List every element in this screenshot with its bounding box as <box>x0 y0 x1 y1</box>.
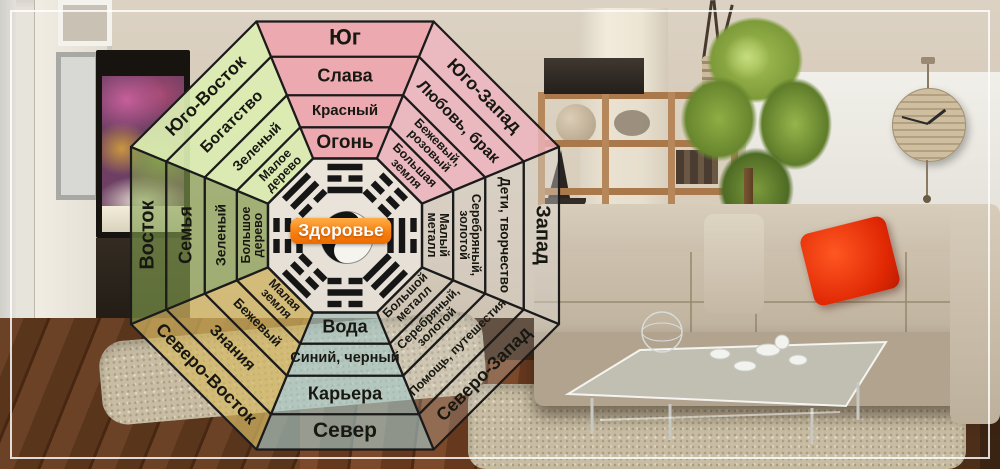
sector-south-direction: Юг <box>329 28 361 49</box>
sector-northeast-direction: Северо-Восток <box>153 321 260 428</box>
sector-north-color: Синий, черный <box>290 352 399 366</box>
sector-northwest-direction: Северо-Запад <box>434 324 535 425</box>
sector-east-element: Большое дерево <box>241 207 265 264</box>
bagua-labels: Юг Слава Красный Огонь Юго-Запад Любовь,… <box>0 0 1000 469</box>
sector-southeast-element: Малое дерево <box>256 146 304 194</box>
sector-east-color: Зеленый <box>214 204 227 266</box>
sector-south-element: Огонь <box>316 134 373 152</box>
sector-north-direction: Север <box>313 421 377 441</box>
feng-shui-bagua-scene: Юг Слава Красный Огонь Юго-Запад Любовь,… <box>0 0 1000 469</box>
center-health-label: Здоровье <box>290 218 391 244</box>
sector-west-element: Малый металл <box>425 213 449 258</box>
sector-north-aspect: Карьера <box>308 385 382 402</box>
sector-north-element: Вода <box>322 318 367 335</box>
sector-east-direction: Восток <box>139 200 158 269</box>
sector-east-aspect: Семья <box>177 206 194 264</box>
sector-northeast-aspect: Знания <box>206 322 257 373</box>
sector-south-aspect: Слава <box>317 67 372 84</box>
sector-west-aspect: Дети, творчество <box>498 177 511 293</box>
sector-south-color: Красный <box>312 104 378 118</box>
sector-west-direction: Запад <box>533 205 552 265</box>
sector-west-color: Серебряный, золотой <box>457 194 481 276</box>
sector-northeast-element: Малая земля <box>258 278 303 323</box>
